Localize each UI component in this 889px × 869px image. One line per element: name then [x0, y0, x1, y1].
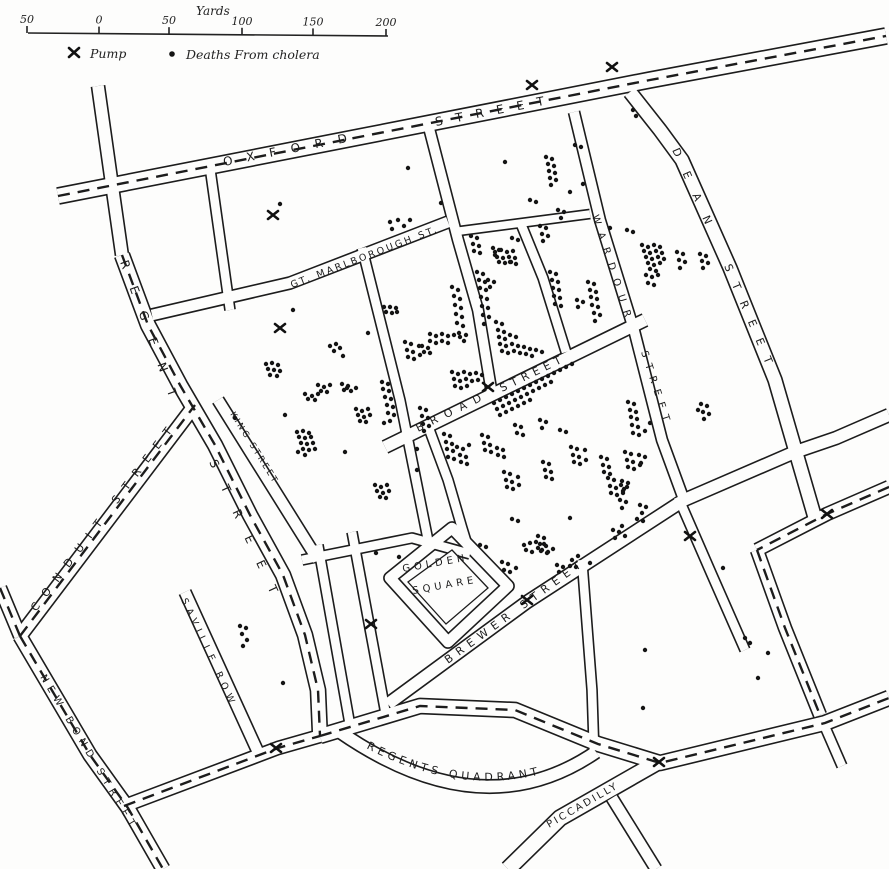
death-dot	[648, 421, 652, 425]
death-dot	[538, 542, 542, 546]
death-dot	[662, 257, 666, 261]
death-dot	[316, 383, 320, 387]
death-dot	[766, 651, 770, 655]
death-dot	[488, 285, 492, 289]
scale-tick-label: 50	[162, 14, 176, 27]
death-dot	[641, 519, 645, 523]
death-dot	[521, 433, 525, 437]
death-dot	[553, 171, 557, 175]
death-dot	[608, 472, 612, 476]
death-dot	[458, 297, 462, 301]
death-dot	[278, 369, 282, 373]
scale-bar: Yards 50050100150200	[20, 4, 397, 36]
death-dot	[502, 330, 506, 334]
death-dot	[524, 352, 528, 356]
death-dot	[588, 561, 592, 565]
death-dot	[498, 342, 502, 346]
death-dot	[596, 305, 600, 309]
death-dot	[309, 435, 313, 439]
death-dot	[470, 379, 474, 383]
pump-icon	[275, 324, 285, 332]
death-dot	[383, 395, 387, 399]
death-dot	[387, 489, 391, 493]
death-dot	[522, 401, 526, 405]
death-dot	[581, 300, 585, 304]
death-dot	[428, 351, 432, 355]
death-dot	[537, 386, 541, 390]
death-dot	[628, 408, 632, 412]
death-dot	[572, 460, 576, 464]
death-dot	[546, 234, 550, 238]
death-dot	[301, 447, 305, 451]
death-dot	[528, 347, 532, 351]
death-dot	[480, 304, 484, 308]
death-dot	[492, 401, 496, 405]
dean-street-label-2: STREET	[721, 262, 780, 378]
death-dot	[496, 328, 500, 332]
death-dot	[607, 465, 611, 469]
death-dot	[602, 470, 606, 474]
death-dot	[508, 260, 512, 264]
death-dot	[356, 413, 360, 417]
death-dot	[464, 333, 468, 337]
death-dot	[586, 280, 590, 284]
death-dot	[446, 334, 450, 338]
death-legend-icon	[169, 51, 175, 57]
death-dot	[546, 162, 550, 166]
death-dot	[516, 389, 520, 393]
death-dot	[384, 310, 388, 314]
death-dot	[683, 260, 687, 264]
death-dot	[634, 114, 638, 118]
death-dot	[620, 506, 624, 510]
death-dot	[360, 409, 364, 413]
death-dot	[522, 386, 526, 390]
death-dot	[552, 164, 556, 168]
death-dot	[534, 380, 538, 384]
death-dot	[546, 550, 550, 554]
death-dot	[501, 448, 505, 452]
scale-tick-label: 100	[232, 15, 253, 28]
death-dot	[296, 450, 300, 454]
death-dot	[620, 479, 624, 483]
death-dot	[555, 563, 559, 567]
death-dot	[643, 648, 647, 652]
death-dot	[643, 455, 647, 459]
death-dot	[245, 638, 249, 642]
death-dot	[551, 547, 555, 551]
death-dot	[422, 429, 426, 433]
death-dot	[519, 425, 523, 429]
death-dot	[455, 321, 459, 325]
death-dot	[498, 413, 502, 417]
death-dot	[658, 245, 662, 249]
death-dot	[620, 524, 624, 528]
death-dot	[625, 485, 629, 489]
death-dot	[424, 408, 428, 412]
death-dot	[281, 681, 285, 685]
death-dot	[570, 362, 574, 366]
death-dot	[455, 445, 459, 449]
death-dot	[557, 288, 561, 292]
death-dot	[641, 706, 645, 710]
death-dot	[386, 382, 390, 386]
death-dot	[631, 460, 635, 464]
death-dot	[678, 266, 682, 270]
death-dot	[322, 385, 326, 389]
death-dot	[382, 421, 386, 425]
death-dot	[540, 350, 544, 354]
death-dot	[592, 311, 596, 315]
death-dot	[700, 259, 704, 263]
death-dot	[544, 155, 548, 159]
death-dot	[503, 261, 507, 265]
death-dot	[542, 542, 546, 546]
death-dot	[506, 351, 510, 355]
death-dot	[394, 306, 398, 310]
death-dot	[631, 431, 635, 435]
death-dot	[395, 310, 399, 314]
death-dot	[462, 370, 466, 374]
death-dot	[354, 386, 358, 390]
death-dot	[426, 346, 430, 350]
death-dot	[552, 294, 556, 298]
death-dot	[515, 431, 519, 435]
death-dot	[476, 378, 480, 382]
death-dot	[465, 462, 469, 466]
streets-surface-layer	[0, 36, 889, 869]
pump-icon	[527, 81, 537, 89]
death-dot	[721, 566, 725, 570]
death-dot	[514, 335, 518, 339]
death-dot	[388, 220, 392, 224]
death-dot	[422, 350, 426, 354]
death-dot	[554, 178, 558, 182]
death-dot	[594, 290, 598, 294]
death-dot	[510, 342, 514, 346]
death-dot	[427, 424, 431, 428]
death-dot	[652, 263, 656, 267]
death-dot	[343, 450, 347, 454]
death-dot	[534, 540, 538, 544]
death-dot	[541, 239, 545, 243]
marshall-street	[362, 248, 428, 540]
death-dot	[554, 272, 558, 276]
death-dot	[698, 252, 702, 256]
death-dot	[349, 389, 353, 393]
death-dot	[636, 425, 640, 429]
death-dot	[378, 495, 382, 499]
death-dot	[374, 551, 378, 555]
death-dot	[511, 249, 515, 253]
death-dot	[456, 372, 460, 376]
death-dot	[446, 455, 450, 459]
death-dot	[528, 541, 532, 545]
death-dot	[506, 562, 510, 566]
death-dot	[701, 266, 705, 270]
death-dot	[646, 261, 650, 265]
death-dot	[642, 249, 646, 253]
death-dot	[516, 238, 520, 242]
death-dot	[619, 483, 623, 487]
death-dot	[510, 392, 514, 396]
death-dot	[579, 145, 583, 149]
death-dot	[569, 445, 573, 449]
death-dot	[478, 251, 482, 255]
death-dot	[549, 470, 553, 474]
death-dot	[617, 530, 621, 534]
death-dot	[328, 383, 332, 387]
death-dot	[384, 496, 388, 500]
death-dot	[564, 430, 568, 434]
death-dot	[557, 570, 561, 574]
death-dot	[542, 536, 546, 540]
death-dot	[524, 548, 528, 552]
death-dot	[635, 417, 639, 421]
death-dot	[549, 380, 553, 384]
death-dot	[540, 377, 544, 381]
death-dot	[486, 435, 490, 439]
pump-legend-icon	[69, 48, 79, 57]
death-dot	[475, 236, 479, 240]
death-dot	[504, 344, 508, 348]
deaths-legend-label: Deaths From cholera	[185, 47, 320, 62]
death-dot	[303, 453, 307, 457]
death-dot	[510, 480, 514, 484]
death-dot	[451, 449, 455, 453]
piccadilly-fork	[612, 798, 656, 869]
death-dot	[503, 337, 507, 341]
death-dot	[450, 285, 454, 289]
death-dot	[439, 201, 443, 205]
scale-tick-label: 150	[303, 15, 324, 28]
death-dot	[548, 176, 552, 180]
death-dot	[474, 371, 478, 375]
death-dot	[518, 351, 522, 355]
death-dot	[299, 441, 303, 445]
death-dot	[450, 442, 454, 446]
death-dot	[462, 339, 466, 343]
death-dot	[481, 313, 485, 317]
death-dot	[538, 418, 542, 422]
death-dot	[445, 447, 449, 451]
death-dot	[480, 373, 484, 377]
death-dot	[495, 446, 499, 450]
death-dot	[556, 280, 560, 284]
death-dot	[559, 304, 563, 308]
death-dot	[613, 536, 617, 540]
death-dot	[319, 389, 323, 393]
death-dot	[340, 382, 344, 386]
death-dot	[295, 430, 299, 434]
death-dot	[502, 568, 506, 572]
death-dot	[638, 503, 642, 507]
map-canvas: Yards 50050100150200 Pump Deaths From ch…	[0, 0, 889, 869]
death-dot	[452, 294, 456, 298]
death-dot	[677, 258, 681, 262]
death-dot	[593, 319, 597, 323]
death-dot	[624, 500, 628, 504]
dean-street-label-1: DEAN	[669, 146, 721, 242]
death-dot	[660, 251, 664, 255]
death-dot	[584, 458, 588, 462]
death-dot	[646, 245, 650, 249]
death-dot	[590, 303, 594, 307]
legend: Pump Deaths From cholera	[69, 46, 320, 62]
death-dot	[368, 413, 372, 417]
death-dot	[482, 322, 486, 326]
death-dot	[307, 448, 311, 452]
death-dot	[495, 407, 499, 411]
death-dot	[568, 564, 572, 568]
death-dot	[241, 644, 245, 648]
death-dot	[528, 398, 532, 402]
death-dot	[568, 516, 572, 520]
death-dot	[456, 288, 460, 292]
death-dot	[388, 419, 392, 423]
regents-quadrant-label: REGENTS QUADRANT	[365, 739, 543, 784]
death-dot	[426, 416, 430, 420]
death-dot	[519, 395, 523, 399]
death-dot	[544, 420, 548, 424]
death-dot	[453, 384, 457, 388]
death-dot	[266, 367, 270, 371]
death-dot	[516, 404, 520, 408]
death-dot	[481, 272, 485, 276]
death-dot	[578, 462, 582, 466]
death-dot	[504, 478, 508, 482]
death-dot	[652, 243, 656, 247]
death-dot	[458, 379, 462, 383]
death-dot	[652, 283, 656, 287]
new-bond-street-label: NEW BOND STREET	[37, 673, 139, 833]
death-dot	[629, 415, 633, 419]
death-dot	[459, 386, 463, 390]
death-dot	[457, 331, 461, 335]
death-dot	[646, 281, 650, 285]
death-dot	[385, 403, 389, 407]
death-dot	[510, 236, 514, 240]
death-dot	[450, 370, 454, 374]
death-dot	[358, 419, 362, 423]
death-dot	[508, 472, 512, 476]
death-dot	[307, 431, 311, 435]
death-dot	[301, 429, 305, 433]
death-dot	[240, 632, 244, 636]
death-dot	[502, 470, 506, 474]
death-dot	[448, 434, 452, 438]
death-dot	[543, 383, 547, 387]
death-dot	[391, 405, 395, 409]
death-dot	[640, 243, 644, 247]
death-dot	[583, 448, 587, 452]
death-dot	[573, 143, 577, 147]
death-dot	[471, 242, 475, 246]
death-dot	[564, 365, 568, 369]
death-dot	[402, 224, 406, 228]
death-dot	[477, 278, 481, 282]
death-dot	[511, 487, 515, 491]
regents-quadrant-label-text: REGENTS QUADRANT	[365, 739, 543, 784]
death-dot	[461, 324, 465, 328]
death-dot	[453, 303, 457, 307]
death-dot	[675, 250, 679, 254]
death-dot	[486, 306, 490, 310]
death-dot	[575, 298, 579, 302]
death-dot	[313, 398, 317, 402]
death-dot	[502, 455, 506, 459]
death-dot	[482, 441, 486, 445]
death-dot	[411, 350, 415, 354]
death-dot	[558, 428, 562, 432]
death-dot	[644, 505, 648, 509]
death-dot	[561, 565, 565, 569]
death-dot	[503, 160, 507, 164]
death-dot	[517, 483, 521, 487]
death-dot	[415, 468, 419, 472]
death-dot	[306, 397, 310, 401]
death-dot	[588, 288, 592, 292]
death-dot	[681, 252, 685, 256]
death-dot	[409, 342, 413, 346]
death-dot	[313, 447, 317, 451]
water-pumps-layer	[268, 63, 832, 766]
death-dot	[696, 408, 700, 412]
death-dot	[412, 357, 416, 361]
death-dot	[592, 282, 596, 286]
death-dot	[625, 458, 629, 462]
saville-row-label: SAVILLE ROW	[178, 597, 238, 710]
death-dot	[611, 528, 615, 532]
death-dot	[491, 246, 495, 250]
death-dot	[501, 256, 505, 260]
death-dot	[629, 452, 633, 456]
death-dot	[428, 339, 432, 343]
death-dot	[550, 477, 554, 481]
death-dot	[640, 511, 644, 515]
death-dot	[475, 270, 479, 274]
death-dot	[442, 432, 446, 436]
death-dot	[626, 465, 630, 469]
death-dot	[508, 333, 512, 337]
death-dot	[390, 311, 394, 315]
death-dot	[364, 420, 368, 424]
death-dot	[421, 422, 425, 426]
death-dot	[528, 383, 532, 387]
regent-street-label-1: REGENT	[117, 258, 186, 416]
death-dot	[497, 335, 501, 339]
death-dot	[704, 254, 708, 258]
death-dot	[303, 392, 307, 396]
death-dot	[493, 253, 497, 257]
death-dot	[458, 335, 462, 339]
death-dot	[614, 486, 618, 490]
death-dot	[570, 558, 574, 562]
death-dot	[643, 429, 647, 433]
death-dot	[516, 344, 520, 348]
death-dot	[465, 384, 469, 388]
death-dot	[577, 455, 581, 459]
death-dot	[553, 302, 557, 306]
death-dot	[283, 413, 287, 417]
death-dot	[268, 373, 272, 377]
death-dot	[595, 297, 599, 301]
death-dot	[354, 407, 358, 411]
death-dot	[608, 484, 612, 488]
death-dot	[530, 550, 534, 554]
death-dot	[699, 402, 703, 406]
death-dot	[534, 348, 538, 352]
